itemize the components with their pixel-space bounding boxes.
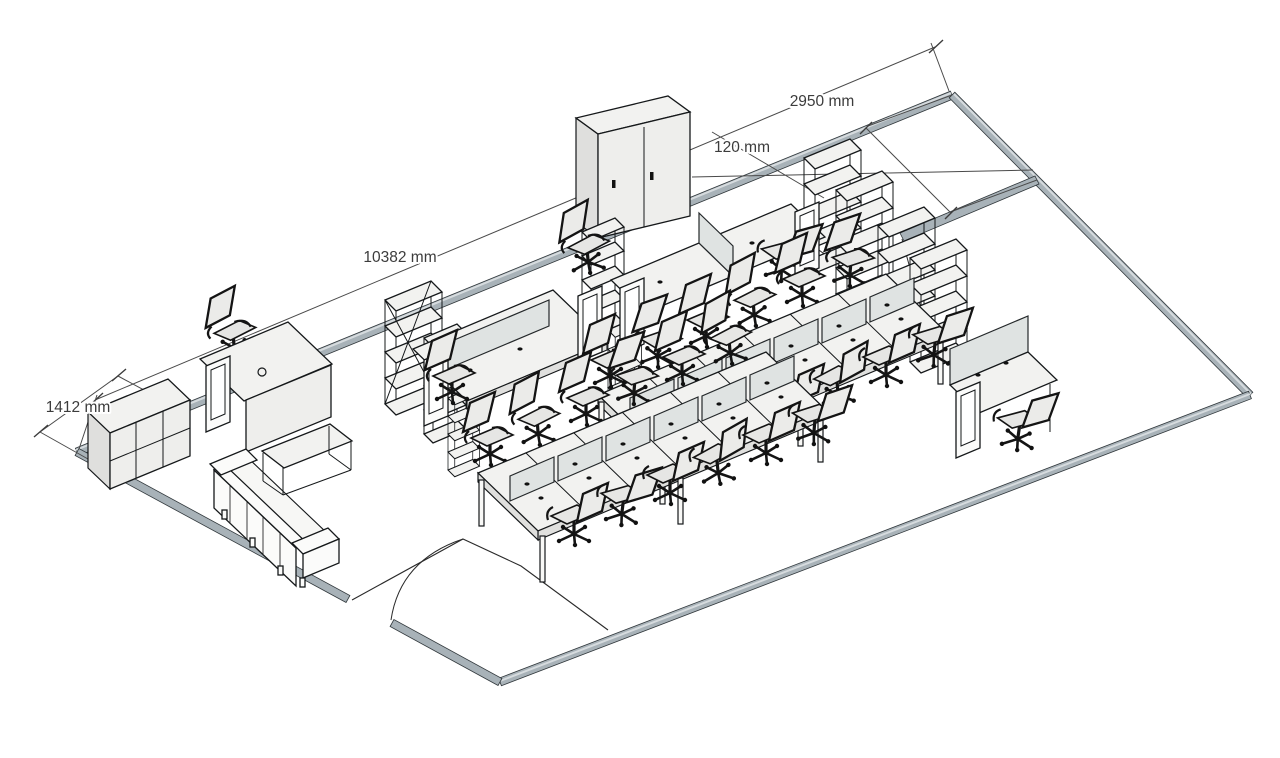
single-desk-right xyxy=(950,316,1058,458)
wall-southwest-a xyxy=(390,620,502,686)
dimension-label-sideboard: 1412 mm xyxy=(46,399,111,416)
executive-desk xyxy=(200,285,332,452)
dimension-label-corner-room: 2950 mm xyxy=(790,93,855,110)
isometric-office-drawing: 10382 mm 2950 mm 120 mm 1412 mm xyxy=(0,0,1280,758)
desk-leg xyxy=(956,382,980,458)
floor-plan-canvas: 10382 mm 2950 mm 120 mm 1412 mm xyxy=(0,0,1280,758)
desk-leg xyxy=(206,356,230,432)
door-arc-entrance xyxy=(391,539,463,620)
door-handle xyxy=(612,180,616,188)
dimension-label-partition: 120 mm xyxy=(714,139,770,156)
wardrobe-cabinet xyxy=(576,96,690,238)
office-chair xyxy=(463,392,513,467)
dimension-label-main-wall: 10382 mm xyxy=(363,249,436,266)
door-handle xyxy=(650,172,654,180)
sofa xyxy=(210,449,339,587)
entrance-vestibule-outline xyxy=(352,539,608,630)
sideboard xyxy=(88,379,190,489)
